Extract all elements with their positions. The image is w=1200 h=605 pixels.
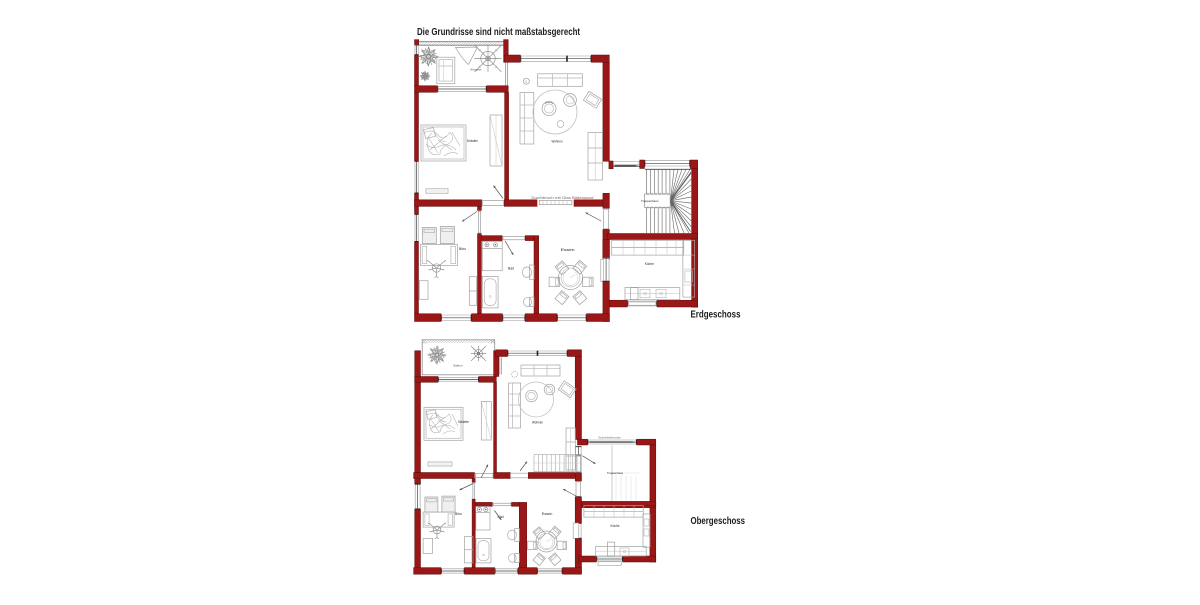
svg-text:Küche: Küche	[645, 262, 654, 266]
svg-text:Die Grundrisse sind nicht maßs: Die Grundrisse sind nicht maßstabsgerech…	[417, 27, 581, 38]
svg-text:Küche: Küche	[611, 524, 620, 528]
svg-text:Essen: Essen	[542, 512, 553, 516]
svg-text:Schlafen: Schlafen	[458, 420, 469, 424]
svg-text:Schlafen: Schlafen	[467, 139, 478, 143]
svg-text:Wohnen: Wohnen	[532, 420, 543, 424]
svg-text:Balkon: Balkon	[454, 364, 463, 368]
svg-text:Essen: Essen	[561, 248, 575, 252]
svg-text:Erdgeschoss: Erdgeschoss	[691, 310, 741, 321]
svg-text:Durchbruch mit Glas Bilderwand: Durchbruch mit Glas Bilderwand	[531, 196, 593, 200]
svg-text:Büro: Büro	[455, 512, 462, 516]
svg-text:Schiebefenster: Schiebefenster	[598, 436, 621, 440]
svg-text:Wohnen: Wohnen	[552, 140, 563, 144]
svg-text:Bad: Bad	[508, 266, 514, 270]
svg-text:Treppenhaus: Treppenhaus	[607, 471, 623, 475]
svg-text:Obergeschoss: Obergeschoss	[691, 516, 746, 527]
svg-text:Wintergarten: Wintergarten	[470, 68, 482, 72]
svg-text:Treppenhaus: Treppenhaus	[641, 199, 659, 203]
svg-text:Büro: Büro	[459, 247, 466, 251]
